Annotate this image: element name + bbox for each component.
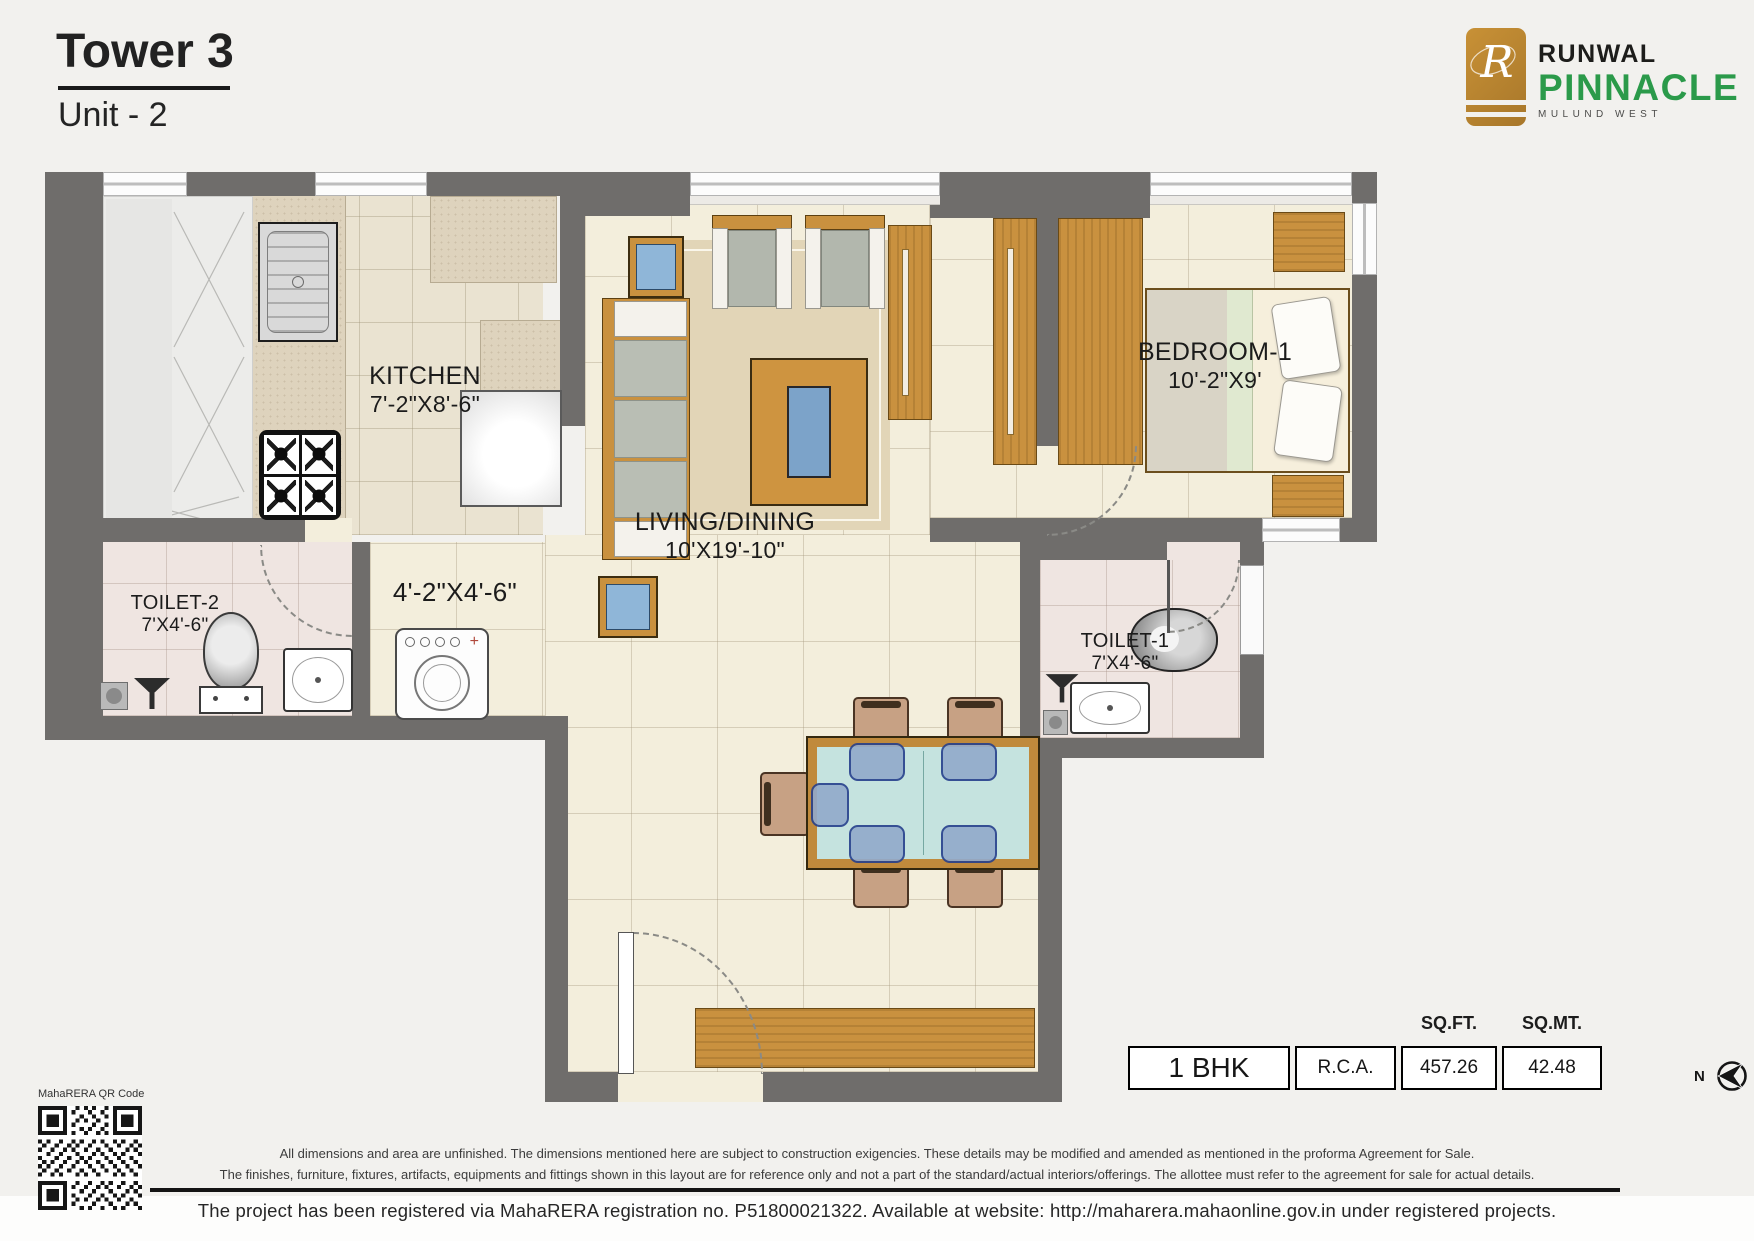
window [1352,203,1377,275]
toilet1-door-leaf [1167,560,1170,633]
seat-back [811,783,849,827]
title-underline [58,86,230,90]
wall [45,172,103,740]
unit-type-cell: 1 BHK [1128,1046,1290,1090]
wall [1020,560,1040,738]
wall [545,740,568,1102]
logo-monogram-flourish-icon: R [1466,30,1526,100]
toilet2-door-opening [305,518,352,542]
qr-code-label: MahaRERA QR Code [38,1088,144,1100]
sqft-value-cell: 457.26 [1401,1046,1497,1090]
toilet1-name: TOILET-1 [1040,630,1210,653]
svg-text:R: R [1479,37,1513,88]
kitchen-sink [258,222,338,342]
toilet1-dim: 7'X4'-6" [1040,653,1210,675]
logo-stripe [1466,100,1526,105]
wall [1037,196,1058,446]
disclaimer-line-2: The finishes, furniture, fixtures, artif… [0,1167,1754,1182]
floor-plan: + KITCHEN 7'-2"X8'-6" LIVING/DINING 10'X… [45,170,1378,1103]
wall [1038,758,1062,1102]
bedroom-dim: 10'-2"X9' [1085,367,1345,393]
sink-drain [292,276,304,288]
area-table: SQ.FT. SQ.MT. 1 BHK R.C.A. 457.26 42.48 [1128,1046,1602,1090]
dining-chair [760,772,810,836]
armchair-arm [776,228,792,309]
armchair-arm [805,228,821,309]
logo-location: MULUND WEST [1538,109,1739,120]
window-sill [1150,196,1352,205]
washing-machine: + [395,628,489,720]
logo-project: PINNACLE [1538,69,1739,106]
dining-table [808,738,1038,868]
bedroom-label: BEDROOM-1 10'-2"X9' [1085,338,1345,393]
kitchen-dim: 7'-2"X8'-6" [300,391,550,417]
washing-machine-controls: + [405,636,479,648]
seat-back [849,743,905,781]
seat-back [849,825,905,863]
floor-drain [1043,710,1068,735]
disclaimer-line-1: All dimensions and area are unfinished. … [0,1146,1754,1161]
window [690,172,940,196]
north-indicator: N [1694,1056,1751,1096]
nightstand [1272,475,1344,517]
compass-icon [1707,1056,1751,1096]
entrance-opening [618,1072,763,1102]
armchair-arm [712,228,728,309]
logo-brand: RUNWAL [1538,40,1739,69]
armchair-arm [869,228,885,309]
north-label: N [1694,1068,1705,1085]
sofa-cushion [614,340,687,397]
basis-cell: R.C.A. [1295,1046,1396,1090]
utility-deck-floor [103,196,253,535]
seat-back [941,743,997,781]
wc-tank [199,686,263,714]
side-table [598,576,658,638]
foyer-cabinet [993,218,1037,465]
gas-stove [259,430,341,520]
sqmt-value-cell: 42.48 [1502,1046,1602,1090]
kitchen-cabinet [430,196,557,283]
burner-icon [264,435,299,474]
armchair [805,215,885,313]
runwal-logo-icon: R [1466,28,1526,126]
armchair-seat [821,230,869,307]
toilet2-label: TOILET-2 7'X4'-6" [105,592,245,636]
wall [1020,738,1264,758]
wall [560,196,690,216]
dining-chair [853,862,909,908]
shower-tap-icon [129,668,175,719]
armchair [712,215,792,313]
washing-machine-drum [414,655,470,711]
bedroom-name: BEDROOM-1 [1085,338,1345,367]
wall [560,196,585,426]
burner-icon [302,435,337,474]
entrance-door-leaf [618,932,634,1074]
living-dim: 10'X19'-10" [610,537,840,563]
side-table [628,236,684,298]
window-sill [690,196,940,205]
coffee-table [750,358,868,506]
unit-subtitle: Unit - 2 [58,96,168,135]
footer-divider [150,1188,1620,1192]
logo-stripe [1466,112,1526,117]
logo-text: RUNWAL PINNACLE MULUND WEST [1538,40,1739,120]
armchair-seat [728,230,776,307]
burner-icon [264,477,299,516]
seat-back [941,825,997,863]
window [1262,518,1340,542]
living-name: LIVING/DINING [610,508,840,537]
living-label: LIVING/DINING 10'X19'-10" [610,508,840,563]
sofa-cushion [614,400,687,457]
dining-chair [947,862,1003,908]
dresser [1273,212,1345,272]
glass-seam [923,751,924,855]
window [315,172,427,196]
toilet1-label: TOILET-1 7'X4'-6" [1040,630,1210,674]
window [1150,172,1352,196]
kitchen-name: KITCHEN [300,362,550,391]
toilet2-dim: 7'X4'-6" [105,615,245,637]
sofa-armrest [614,301,687,337]
page-title: Tower 3 [56,24,234,79]
floor-drain [100,682,128,710]
passage-dim: 4'-2"X4'-6" [365,578,545,608]
tv-unit [888,225,932,420]
burner-icon [302,477,337,516]
washbasin [283,648,353,712]
dining-chair [947,697,1003,743]
service-shaft [1240,565,1264,655]
kitchen-label: KITCHEN 7'-2"X8'-6" [300,362,550,417]
toilet1-door-opening [1167,542,1240,560]
sqmt-header: SQ.MT. [1502,1010,1602,1036]
wall [352,542,370,716]
rera-registration-line: The project has been registered via Maha… [0,1200,1754,1222]
dining-chair [853,697,909,743]
toilet2-name: TOILET-2 [105,592,245,615]
hatch-pattern-icon [104,197,254,536]
wall [45,716,568,740]
passage-label: 4'-2"X4'-6" [365,578,545,608]
sqft-header: SQ.FT. [1401,1010,1497,1036]
window [103,172,187,196]
